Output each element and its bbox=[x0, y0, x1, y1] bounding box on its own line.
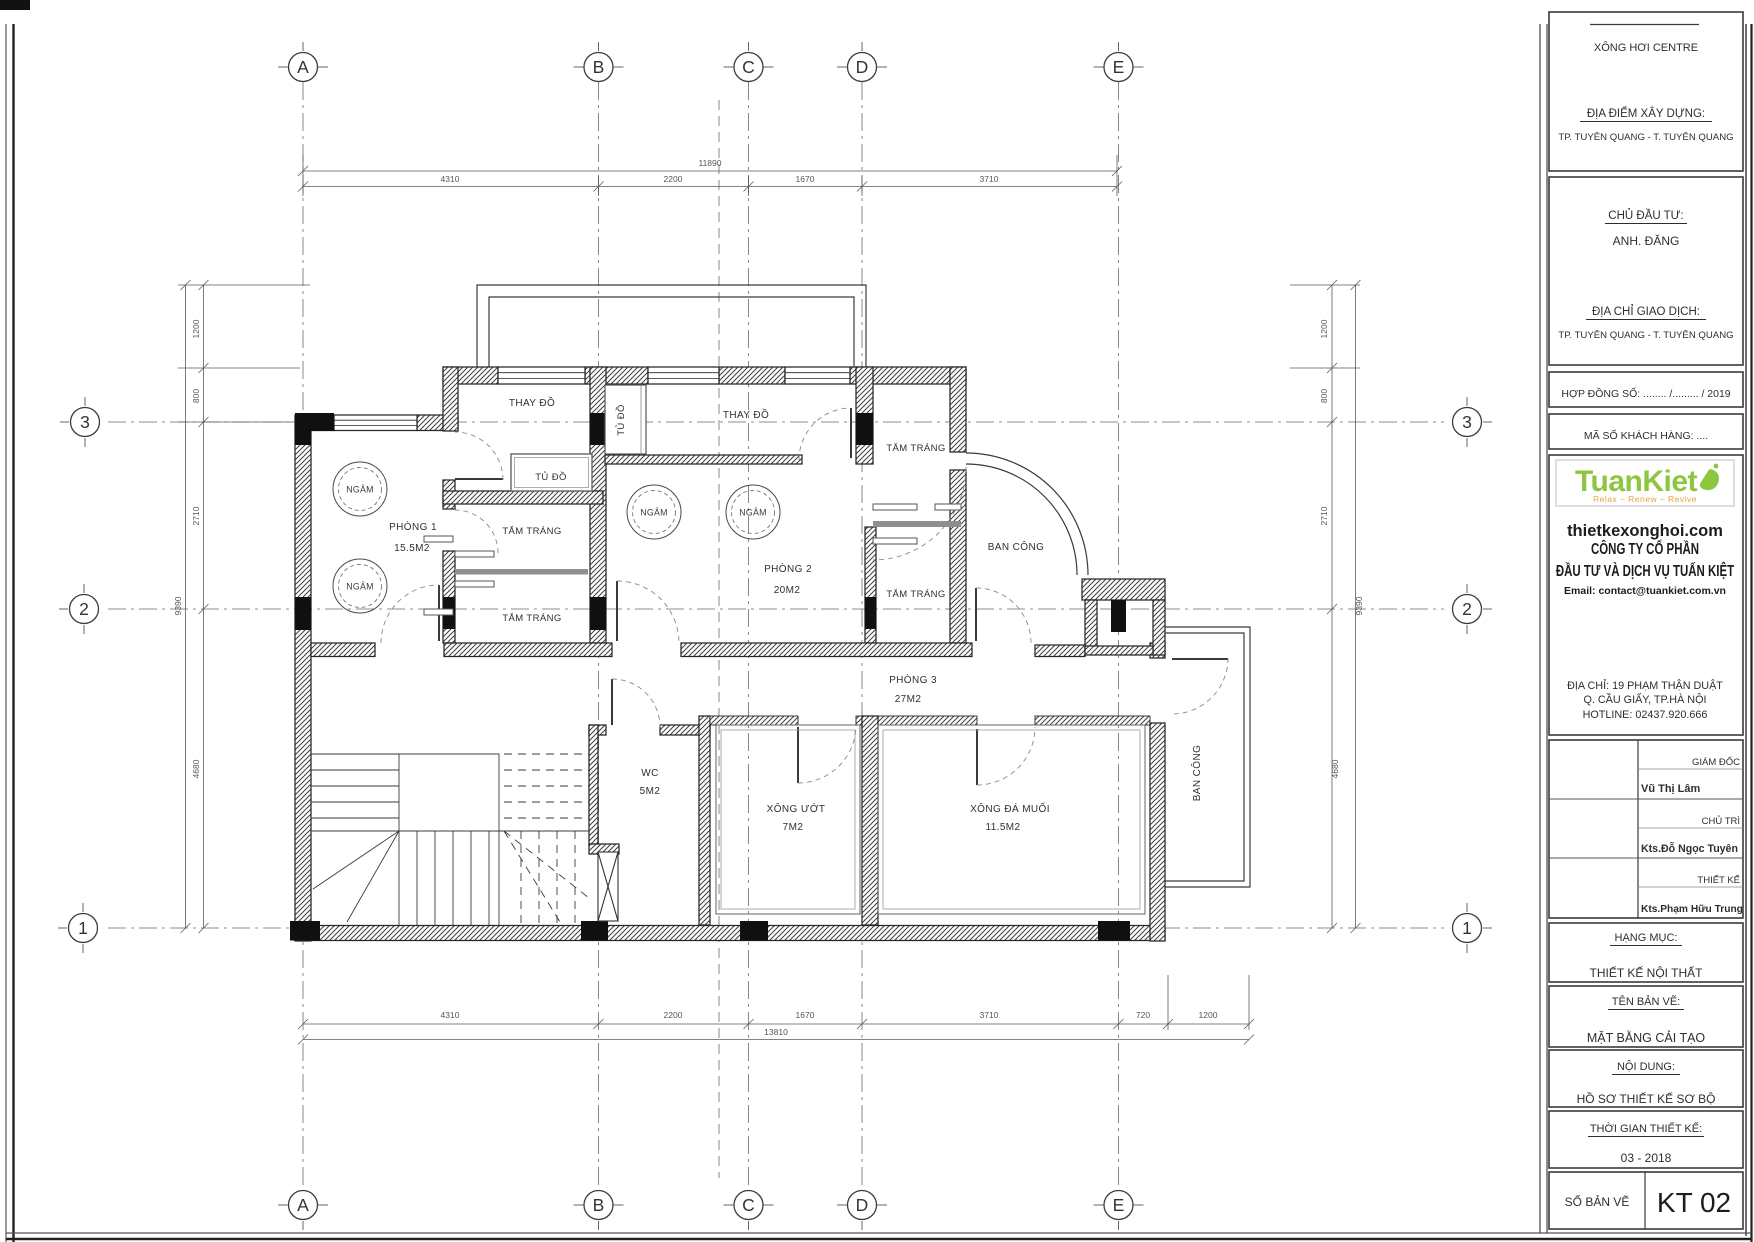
svg-text:Email: contact@tuankiet.com.vn: Email: contact@tuankiet.com.vn bbox=[1564, 585, 1726, 597]
svg-text:thietkexonghoi.com: thietkexonghoi.com bbox=[1567, 522, 1723, 540]
svg-text:ĐỊA ĐIỂM XÂY DỰNG:: ĐỊA ĐIỂM XÂY DỰNG: bbox=[1587, 107, 1705, 120]
svg-text:CHỦ ĐẦU TƯ:: CHỦ ĐẦU TƯ: bbox=[1608, 209, 1683, 222]
svg-text:Vũ Thị Lâm: Vũ Thị Lâm bbox=[1641, 783, 1701, 795]
svg-text:MÃ SỐ KHÁCH HÀNG: ....: MÃ SỐ KHÁCH HÀNG: .... bbox=[1584, 428, 1708, 442]
svg-text:D: D bbox=[856, 1195, 869, 1215]
svg-text:ĐẦU TƯ VÀ DỊCH VỤ TUẤN KIỆT: ĐẦU TƯ VÀ DỊCH VỤ TUẤN KIỆT bbox=[1556, 562, 1735, 579]
svg-text:4680: 4680 bbox=[191, 759, 201, 778]
svg-text:3710: 3710 bbox=[980, 174, 999, 184]
svg-text:800: 800 bbox=[191, 389, 201, 403]
svg-text:TP. TUYÊN QUANG - T. TUYÊN QUA: TP. TUYÊN QUANG - T. TUYÊN QUANG bbox=[1558, 132, 1733, 143]
svg-text:2710: 2710 bbox=[191, 506, 201, 525]
svg-text:NGÂM: NGÂM bbox=[739, 508, 767, 518]
svg-text:BAN CÔNG: BAN CÔNG bbox=[1190, 745, 1203, 802]
svg-text:B: B bbox=[593, 57, 605, 77]
svg-text:NGÂM: NGÂM bbox=[346, 485, 374, 495]
svg-text:NGÂM: NGÂM bbox=[346, 582, 374, 592]
svg-text:1: 1 bbox=[1462, 918, 1472, 938]
svg-text:4680: 4680 bbox=[1330, 759, 1340, 778]
svg-text:1670: 1670 bbox=[796, 174, 815, 184]
svg-text:2710: 2710 bbox=[1319, 506, 1329, 525]
svg-text:B: B bbox=[593, 1195, 605, 1215]
svg-text:5M2: 5M2 bbox=[640, 786, 661, 797]
svg-text:PHÒNG 1: PHÒNG 1 bbox=[389, 520, 437, 533]
svg-text:2: 2 bbox=[1462, 599, 1472, 619]
svg-text:THIẾT KẾ NỘI THẤT: THIẾT KẾ NỘI THẤT bbox=[1590, 965, 1704, 980]
svg-text:GIÁM ĐỐC: GIÁM ĐỐC bbox=[1692, 756, 1740, 768]
svg-text:MẶT BẰNG CẢI TẠO: MẶT BẰNG CẢI TẠO bbox=[1587, 1030, 1706, 1045]
svg-text:TỦ ĐỒ: TỦ ĐỒ bbox=[535, 471, 567, 483]
svg-text:11890: 11890 bbox=[698, 158, 721, 168]
svg-text:Q. CẦU GIẤY, TP.HÀ NỘI: Q. CẦU GIẤY, TP.HÀ NỘI bbox=[1583, 693, 1706, 706]
svg-text:800: 800 bbox=[1319, 389, 1329, 403]
svg-text:13810: 13810 bbox=[764, 1027, 788, 1037]
svg-text:Kts.Đỗ Ngọc Tuyên: Kts.Đỗ Ngọc Tuyên bbox=[1641, 842, 1738, 855]
svg-text:HẠNG MỤC:: HẠNG MỤC: bbox=[1615, 932, 1678, 944]
svg-text:CÔNG TY CỔ PHẦN: CÔNG TY CỔ PHẦN bbox=[1591, 540, 1699, 557]
svg-text:11.5M2: 11.5M2 bbox=[985, 822, 1020, 833]
svg-text:3710: 3710 bbox=[980, 1010, 999, 1020]
svg-text:PHÒNG 3: PHÒNG 3 bbox=[889, 673, 937, 686]
svg-text:HỒ SƠ THIẾT KẾ SƠ BỘ: HỒ SƠ THIẾT KẾ SƠ BỘ bbox=[1577, 1091, 1716, 1106]
svg-text:TÊN BẢN VẼ:: TÊN BẢN VẼ: bbox=[1612, 995, 1680, 1008]
svg-text:XÔNG ĐÁ MUỐI: XÔNG ĐÁ MUỐI bbox=[970, 801, 1050, 815]
svg-text:1200: 1200 bbox=[1319, 319, 1329, 338]
svg-text:720: 720 bbox=[1136, 1010, 1150, 1020]
svg-text:27M2: 27M2 bbox=[895, 694, 922, 705]
svg-text:D: D bbox=[856, 57, 869, 77]
svg-text:3: 3 bbox=[1462, 412, 1472, 432]
svg-text:TẮM TRÁNG: TẮM TRÁNG bbox=[886, 589, 945, 600]
svg-text:2200: 2200 bbox=[664, 1010, 683, 1020]
svg-text:HỢP ĐỒNG SỐ: ........ /.......: HỢP ĐỒNG SỐ: ........ /......... / 2019 bbox=[1561, 386, 1730, 400]
svg-text:C: C bbox=[742, 1195, 755, 1215]
svg-text:7M2: 7M2 bbox=[783, 822, 804, 833]
svg-text:E: E bbox=[1113, 1195, 1125, 1215]
svg-text:ĐỊA CHỈ GIAO DỊCH:: ĐỊA CHỈ GIAO DỊCH: bbox=[1592, 305, 1700, 318]
svg-text:BAN CÔNG: BAN CÔNG bbox=[988, 540, 1045, 553]
svg-text:TP. TUYÊN QUANG - T. TUYÊN QUA: TP. TUYÊN QUANG - T. TUYÊN QUANG bbox=[1558, 330, 1733, 341]
svg-text:HOTLINE: 02437.920.666: HOTLINE: 02437.920.666 bbox=[1583, 709, 1708, 721]
svg-text:C: C bbox=[742, 57, 755, 77]
svg-text:4310: 4310 bbox=[441, 1010, 460, 1020]
svg-text:CHỦ TRÌ: CHỦ TRÌ bbox=[1702, 815, 1741, 827]
svg-text:ANH. ĐĂNG: ANH. ĐĂNG bbox=[1613, 233, 1680, 248]
svg-text:1: 1 bbox=[78, 918, 88, 938]
svg-text:A: A bbox=[297, 57, 309, 77]
svg-text:KT 02: KT 02 bbox=[1657, 1187, 1731, 1218]
svg-text:ĐỊA CHỈ: 19 PHẠM THẬN DUẬT: ĐỊA CHỈ: 19 PHẠM THẬN DUẬT bbox=[1567, 679, 1723, 692]
svg-text:THAY ĐỒ: THAY ĐỒ bbox=[723, 408, 769, 421]
svg-text:WC: WC bbox=[641, 768, 658, 779]
svg-text:2200: 2200 bbox=[664, 174, 683, 184]
svg-text:1200: 1200 bbox=[191, 319, 201, 338]
svg-text:Kts.Phạm Hữu Trung: Kts.Phạm Hữu Trung bbox=[1641, 904, 1743, 915]
svg-text:TẮM TRÁNG: TẮM TRÁNG bbox=[502, 526, 561, 537]
svg-text:A: A bbox=[297, 1195, 309, 1215]
svg-text:PHÒNG 2: PHÒNG 2 bbox=[764, 562, 812, 575]
svg-text:THIẾT KẾ: THIẾT KẾ bbox=[1697, 875, 1740, 886]
svg-text:2: 2 bbox=[79, 599, 89, 619]
svg-text:SỐ BẢN VẼ: SỐ BẢN VẼ bbox=[1565, 1194, 1630, 1209]
svg-text:TẮM TRÁNG: TẮM TRÁNG bbox=[886, 443, 945, 454]
svg-text:3: 3 bbox=[80, 412, 90, 432]
svg-text:XÔNG HƠI CENTRE: XÔNG HƠI CENTRE bbox=[1594, 41, 1698, 54]
svg-text:4310: 4310 bbox=[441, 174, 460, 184]
svg-text:9390: 9390 bbox=[173, 596, 183, 615]
svg-text:TẮM TRÁNG: TẮM TRÁNG bbox=[502, 613, 561, 624]
svg-text:THAY ĐỒ: THAY ĐỒ bbox=[509, 396, 555, 409]
svg-text:XÔNG ƯỚT: XÔNG ƯỚT bbox=[767, 802, 826, 815]
svg-text:9390: 9390 bbox=[1354, 596, 1364, 615]
svg-text:1200: 1200 bbox=[1199, 1010, 1218, 1020]
svg-text:TỦ ĐỒ: TỦ ĐỒ bbox=[615, 404, 627, 436]
svg-text:THỜI GIAN THIẾT KẾ:: THỜI GIAN THIẾT KẾ: bbox=[1590, 1122, 1702, 1135]
svg-text:Relax – Renew – Revive: Relax – Renew – Revive bbox=[1593, 494, 1697, 504]
svg-text:NGÂM: NGÂM bbox=[640, 508, 668, 518]
svg-text:NỘI DUNG:: NỘI DUNG: bbox=[1617, 1060, 1675, 1073]
svg-text:15.5M2: 15.5M2 bbox=[394, 543, 430, 554]
svg-text:03 - 2018: 03 - 2018 bbox=[1621, 1151, 1672, 1165]
svg-text:1670: 1670 bbox=[796, 1010, 815, 1020]
svg-text:20M2: 20M2 bbox=[774, 585, 801, 596]
svg-text:E: E bbox=[1113, 57, 1125, 77]
